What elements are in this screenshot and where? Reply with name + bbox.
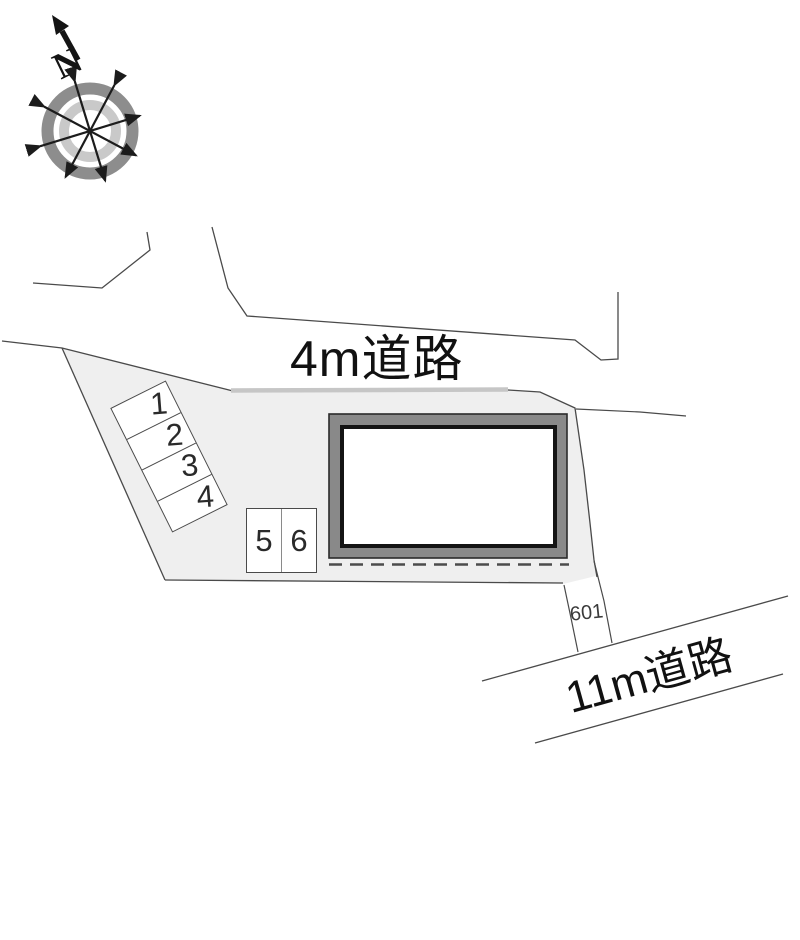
site-plan-page: { "plan": { "type": "residential-site-pl… (0, 0, 800, 940)
parking-stall-6-label: 6 (290, 525, 307, 556)
building-inner-wall (342, 427, 555, 546)
parking-stall-4-label: 4 (195, 480, 215, 512)
parking-stall-3-label: 3 (180, 449, 200, 481)
lot-number-label: 601 (569, 600, 605, 626)
parking-stall-5: 5 (247, 509, 281, 572)
parking-box-5-6: 5 6 (246, 508, 317, 573)
boundary-extension-right (576, 409, 686, 416)
road4m-upper-outline-left (33, 232, 150, 288)
parking-stall-5-label: 5 (255, 525, 272, 556)
road4m-label: 4m道路 (290, 330, 490, 390)
parking-stall-2-label: 2 (164, 419, 184, 451)
parking-stall-1-label: 1 (149, 388, 169, 420)
site-plan-drawing (0, 0, 800, 940)
parking-stall-6: 6 (281, 509, 316, 572)
building (329, 414, 567, 558)
compass-star-arrows (40, 81, 139, 180)
compass-rose (40, 15, 139, 181)
